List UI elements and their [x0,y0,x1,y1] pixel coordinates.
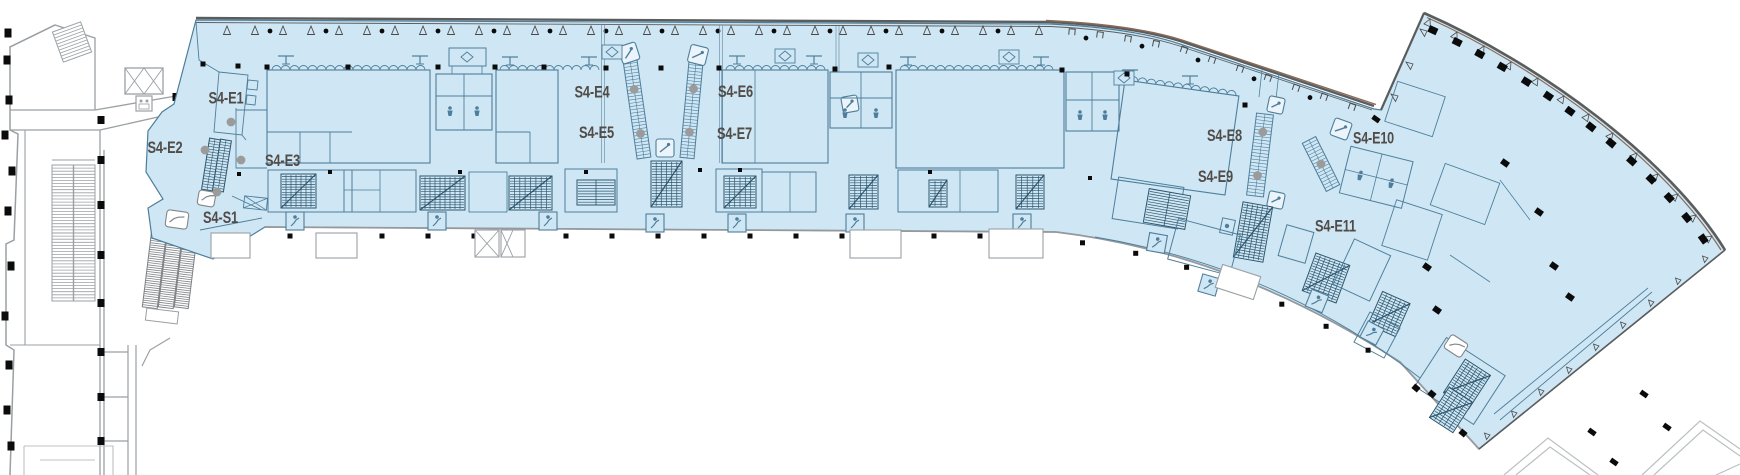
svg-text:S4-E1: S4-E1 [209,89,244,108]
svg-text:S4-E9: S4-E9 [1198,167,1233,186]
svg-text:S4-E3: S4-E3 [265,151,300,170]
svg-text:S4-E11: S4-E11 [1315,217,1356,236]
svg-text:S4-E2: S4-E2 [148,138,183,157]
svg-text:S4-E6: S4-E6 [718,82,753,101]
svg-text:S4-E7: S4-E7 [717,124,752,143]
svg-text:S4-E4: S4-E4 [575,83,611,102]
svg-text:S4-E5: S4-E5 [579,123,614,142]
svg-text:S4-E10: S4-E10 [1353,129,1394,148]
svg-text:S4-S1: S4-S1 [203,208,238,227]
svg-text:S4-E8: S4-E8 [1207,126,1242,145]
